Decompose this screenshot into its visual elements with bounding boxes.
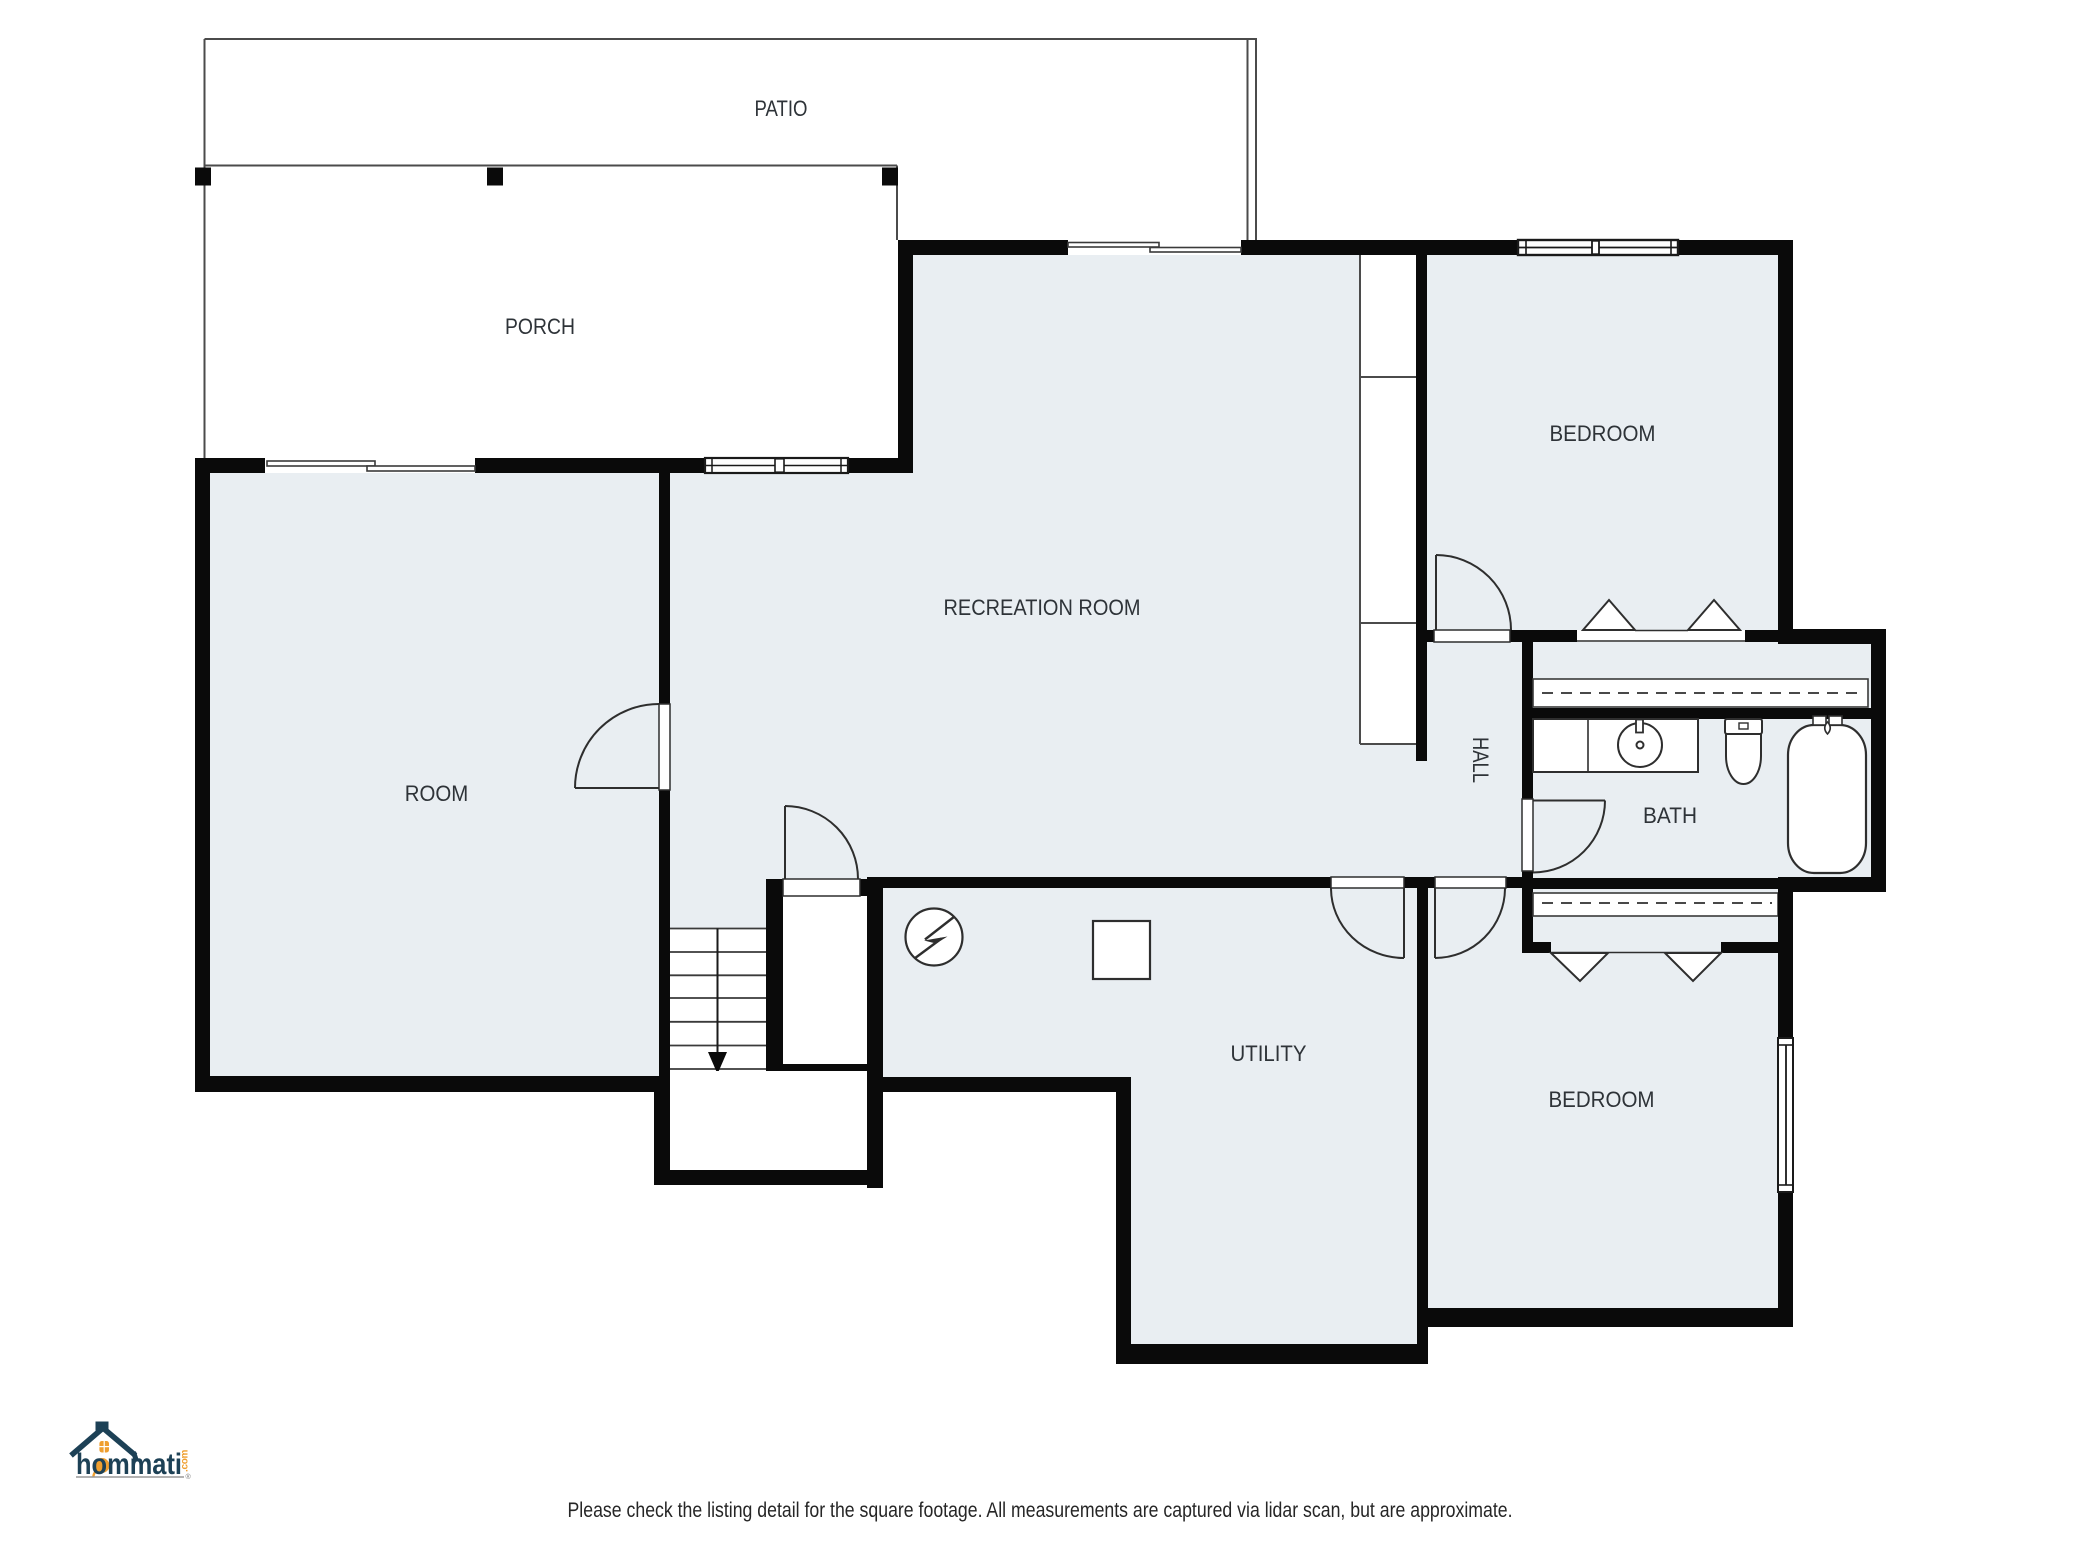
svg-text:PATIO: PATIO: [755, 96, 808, 121]
svg-text:Please check the listing detai: Please check the listing detail for the …: [568, 1499, 1513, 1522]
svg-text:.com: .com: [180, 1449, 191, 1472]
svg-text:hommati: hommati: [76, 1448, 182, 1481]
svg-text:BATH: BATH: [1643, 803, 1697, 828]
svg-text:ROOM: ROOM: [405, 781, 469, 806]
svg-text:HALL: HALL: [1468, 737, 1493, 783]
svg-text:RECREATION ROOM: RECREATION ROOM: [944, 595, 1141, 620]
svg-text:®: ®: [186, 1473, 192, 1481]
svg-text:UTILITY: UTILITY: [1231, 1041, 1307, 1066]
svg-text:BEDROOM: BEDROOM: [1550, 421, 1656, 446]
svg-text:PORCH: PORCH: [505, 314, 575, 339]
svg-text:BEDROOM: BEDROOM: [1549, 1087, 1655, 1112]
